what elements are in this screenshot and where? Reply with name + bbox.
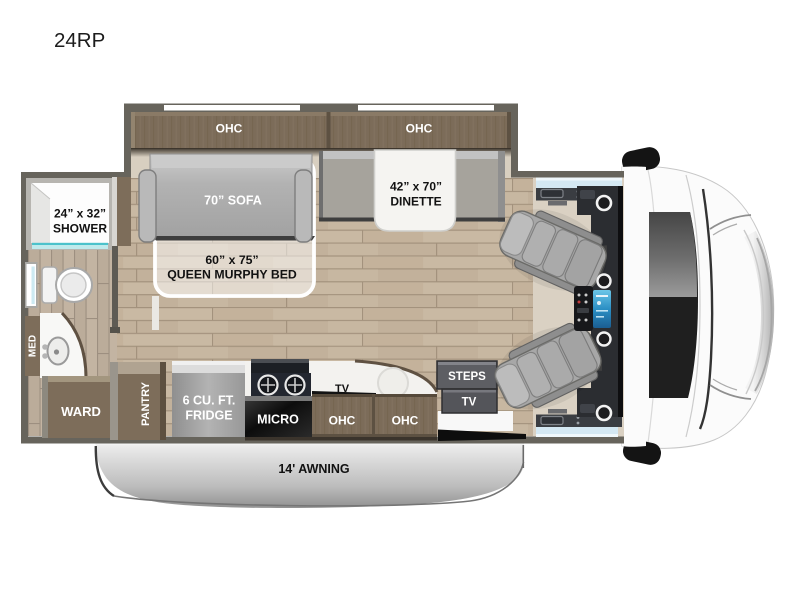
svg-text:DINETTE: DINETTE (390, 195, 441, 209)
svg-text:70” SOFA: 70” SOFA (204, 194, 262, 208)
svg-text:TV: TV (462, 397, 477, 409)
svg-text:OHC: OHC (392, 414, 419, 428)
svg-text:OHC: OHC (216, 122, 243, 136)
svg-text:24” x 32”: 24” x 32” (54, 207, 106, 221)
svg-text:14' AWNING: 14' AWNING (278, 462, 349, 476)
svg-text:MICRO: MICRO (257, 413, 299, 427)
svg-text:MED: MED (28, 335, 39, 357)
svg-text:6 CU. FT.: 6 CU. FT. (183, 394, 236, 408)
svg-text:42” x 70”: 42” x 70” (390, 180, 442, 194)
svg-text:60” x 75”: 60” x 75” (205, 253, 258, 267)
svg-text:PANTRY: PANTRY (140, 381, 152, 426)
svg-text:24RP: 24RP (54, 29, 105, 52)
svg-text:WARD: WARD (61, 404, 101, 419)
svg-text:STEPS: STEPS (448, 371, 486, 383)
svg-text:SHOWER: SHOWER (53, 222, 107, 236)
svg-text:TV: TV (335, 383, 350, 395)
svg-text:OHC: OHC (406, 122, 433, 136)
svg-text:QUEEN MURPHY BED: QUEEN MURPHY BED (167, 268, 297, 282)
svg-text:FRIDGE: FRIDGE (185, 409, 232, 423)
svg-text:OHC: OHC (329, 414, 356, 428)
